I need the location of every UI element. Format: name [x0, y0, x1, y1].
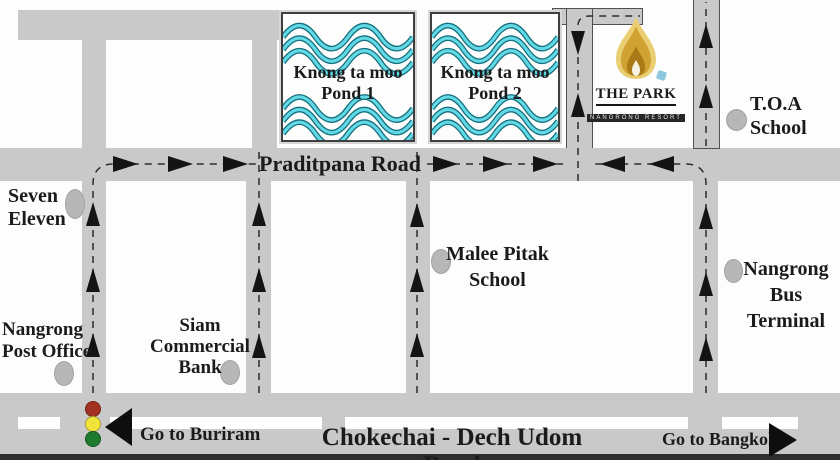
arrow-left-icon	[649, 156, 674, 172]
seven-eleven-marker-icon	[65, 189, 85, 219]
go-to-buriram-label: Go to Buriram	[140, 424, 260, 446]
pond-2-label: Knong ta moo Pond 2	[432, 62, 558, 104]
toa-school-label: T.O.A School	[750, 92, 807, 140]
pond-1: Knong ta moo Pond 1	[281, 12, 415, 142]
route-map: Knong ta moo Pond 1 Knong ta moo Pond 2	[0, 0, 840, 460]
post-office-label: Nangrong Post Office	[2, 319, 91, 363]
arrow-up-icon	[699, 84, 713, 108]
post-office-marker-icon	[54, 361, 74, 386]
resort-name: THE PARK	[596, 86, 677, 106]
arrow-down-icon	[571, 31, 585, 55]
top-road	[18, 10, 281, 40]
malee-pitak-label: Malee Pitak School	[440, 241, 555, 293]
arrow-up-icon	[86, 202, 100, 226]
arrow-up-icon	[410, 203, 424, 227]
arrow-up-icon	[699, 205, 713, 229]
praditpana-road-label: Praditpana Road	[240, 151, 440, 177]
seven-eleven-label: Seven Eleven	[8, 185, 66, 231]
west-road-upper	[82, 40, 106, 148]
arrow-right-icon	[533, 156, 558, 172]
traffic-light-yellow-icon	[85, 416, 101, 432]
arrow-up-icon	[410, 333, 424, 357]
arrow-up-icon	[252, 202, 266, 226]
traffic-light-red-icon	[85, 401, 101, 417]
arrow-up-icon	[86, 268, 100, 292]
arrow-up-icon	[252, 334, 266, 358]
arrow-up-icon	[571, 93, 585, 117]
arrow-right-icon	[483, 156, 508, 172]
bus-terminal-label: Nangrong Bus Terminal	[735, 256, 837, 334]
pond-2: Knong ta moo Pond 2	[430, 12, 560, 142]
arrow-up-icon	[699, 337, 713, 361]
arrow-up-icon	[699, 272, 713, 296]
arrow-right-icon	[113, 156, 138, 172]
flame-icon	[609, 16, 663, 80]
the-park-resort-logo: THE PARK NANGRONG RESORT	[586, 16, 686, 124]
resort-subtitle: NANGRONG RESORT	[587, 114, 685, 122]
arrow-up-icon	[699, 24, 713, 48]
traffic-light-green-icon	[85, 431, 101, 447]
arrow-left-icon	[600, 156, 625, 172]
toa-school-marker-icon	[726, 109, 747, 131]
go-to-bangkok-label: Go to Bangkok	[662, 429, 778, 450]
go-to-buriram-arrow-icon	[105, 408, 132, 446]
east-road-upper	[693, 0, 720, 149]
bank-road-upper	[252, 40, 277, 148]
siam-bank-label: Siam Commercial Bank	[148, 315, 252, 378]
arrow-up-icon	[410, 268, 424, 292]
arrow-right-icon	[168, 156, 193, 172]
pond-1-label: Knong ta moo Pond 1	[283, 62, 413, 104]
go-to-bangkok-arrow-icon	[769, 423, 797, 457]
chokechai-road-label: Chokechai - Dech Udom Road	[302, 424, 602, 460]
arrow-up-icon	[252, 268, 266, 292]
lane-dash	[18, 417, 60, 429]
